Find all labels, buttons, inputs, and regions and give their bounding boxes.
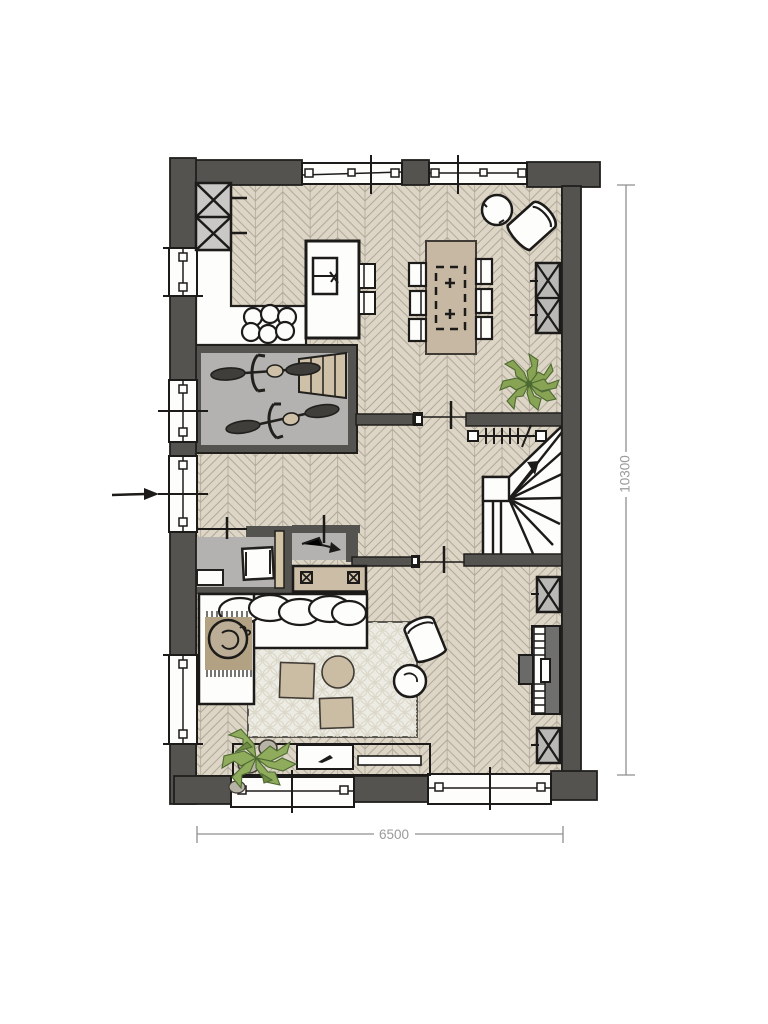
svg-text:10300: 10300 — [618, 455, 633, 493]
svg-text:6500: 6500 — [379, 827, 409, 842]
